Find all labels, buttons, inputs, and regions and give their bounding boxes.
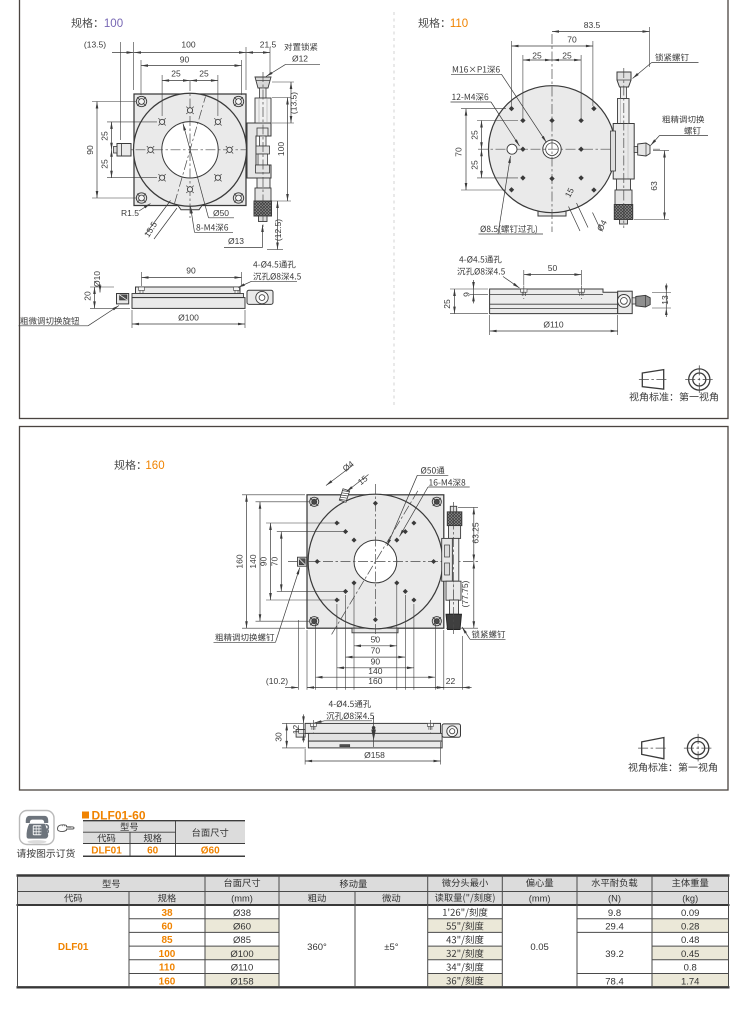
svg-text:12: 12 (291, 725, 301, 735)
svg-text:Ø158: Ø158 (230, 976, 253, 987)
svg-text:60: 60 (161, 922, 173, 933)
svg-text:25: 25 (100, 159, 110, 169)
svg-text:50: 50 (548, 263, 558, 273)
svg-text:70: 70 (454, 147, 464, 157)
svg-text:39.2: 39.2 (605, 949, 624, 960)
svg-text:Ø13: Ø13 (228, 236, 244, 246)
svg-text:160: 160 (159, 976, 176, 987)
svg-text:DLF01: DLF01 (91, 846, 122, 857)
svg-text:50: 50 (371, 634, 381, 644)
svg-text:Ø4: Ø4 (341, 459, 356, 474)
svg-text:Ø158: Ø158 (364, 750, 385, 760)
svg-text:110: 110 (450, 18, 468, 30)
svg-text:38: 38 (161, 908, 173, 919)
svg-text:25: 25 (470, 130, 480, 140)
svg-text:Ø60: Ø60 (233, 922, 251, 933)
svg-text:29.4: 29.4 (605, 922, 624, 933)
svg-text:160: 160 (368, 676, 382, 686)
svg-text:0.45: 0.45 (681, 949, 700, 960)
svg-text:(N): (N) (608, 894, 621, 904)
svg-text:90: 90 (85, 145, 95, 155)
svg-text:25: 25 (532, 50, 542, 60)
svg-text:(kg): (kg) (682, 894, 698, 904)
svg-text:30: 30 (274, 732, 284, 742)
svg-text:0.05: 0.05 (530, 942, 549, 953)
svg-text:Ø50: Ø50 (213, 208, 229, 218)
svg-text:(mm): (mm) (529, 894, 551, 904)
svg-text:Ø12: Ø12 (292, 54, 308, 64)
svg-text:13: 13 (660, 295, 670, 305)
svg-text:1.74: 1.74 (681, 976, 700, 987)
svg-text:25: 25 (442, 299, 452, 309)
svg-text:(13.5): (13.5) (84, 40, 106, 50)
svg-text:100: 100 (159, 949, 176, 960)
svg-text:DLF01: DLF01 (58, 942, 89, 953)
svg-text:±5°: ±5° (384, 942, 398, 953)
svg-text:9.8: 9.8 (608, 908, 621, 919)
svg-text:60: 60 (147, 846, 159, 857)
svg-text:Ø4: Ø4 (595, 218, 609, 233)
svg-text:140: 140 (368, 666, 382, 676)
svg-text:100: 100 (276, 142, 286, 156)
svg-text:25: 25 (171, 68, 181, 78)
svg-text:R1.5: R1.5 (121, 208, 139, 218)
svg-text:20: 20 (83, 291, 93, 301)
svg-text:160: 160 (145, 460, 164, 472)
svg-text:63: 63 (649, 181, 659, 191)
svg-text:(77.75): (77.75) (460, 580, 470, 607)
svg-text:78.4: 78.4 (605, 976, 624, 987)
svg-text:85: 85 (161, 935, 173, 946)
svg-text:(13.5): (13.5) (289, 92, 299, 114)
svg-text:(12.5): (12.5) (273, 219, 283, 241)
svg-text:0.8: 0.8 (684, 963, 697, 974)
svg-text:0.09: 0.09 (681, 908, 700, 919)
svg-text:160: 160 (235, 554, 245, 568)
svg-text:Ø110: Ø110 (543, 320, 563, 330)
svg-text:Ø100: Ø100 (178, 313, 199, 323)
svg-text:0.48: 0.48 (681, 935, 700, 946)
svg-text:Ø38: Ø38 (233, 908, 251, 919)
svg-text:83.5: 83.5 (584, 20, 601, 30)
svg-text:63.25: 63.25 (471, 522, 481, 544)
svg-text:110: 110 (159, 963, 176, 974)
svg-text:15.5: 15.5 (142, 220, 159, 240)
svg-text:(10.2): (10.2) (266, 676, 288, 686)
svg-text:21.5: 21.5 (260, 40, 277, 50)
svg-text:25: 25 (470, 160, 480, 170)
svg-text:(mm): (mm) (231, 894, 253, 904)
svg-text:100: 100 (104, 18, 123, 30)
svg-text:Ø60: Ø60 (201, 846, 220, 857)
svg-text:100: 100 (181, 40, 195, 50)
svg-text:25: 25 (562, 50, 572, 60)
svg-text:70: 70 (567, 35, 577, 45)
svg-text:0.28: 0.28 (681, 922, 700, 933)
svg-text:70: 70 (371, 646, 381, 656)
svg-text:Ø110: Ø110 (231, 963, 254, 974)
svg-text:70: 70 (269, 557, 279, 567)
svg-text:90: 90 (186, 266, 196, 276)
svg-text:22: 22 (446, 676, 456, 686)
svg-text:Ø85: Ø85 (233, 935, 251, 946)
svg-text:140: 140 (248, 554, 258, 568)
svg-text:Ø10: Ø10 (92, 271, 102, 287)
svg-text:90: 90 (180, 55, 190, 65)
svg-text:25: 25 (100, 131, 110, 141)
svg-text:90: 90 (259, 557, 269, 567)
svg-text:25: 25 (199, 68, 209, 78)
svg-text:Ø100: Ø100 (230, 949, 253, 960)
svg-text:360°: 360° (307, 942, 327, 953)
